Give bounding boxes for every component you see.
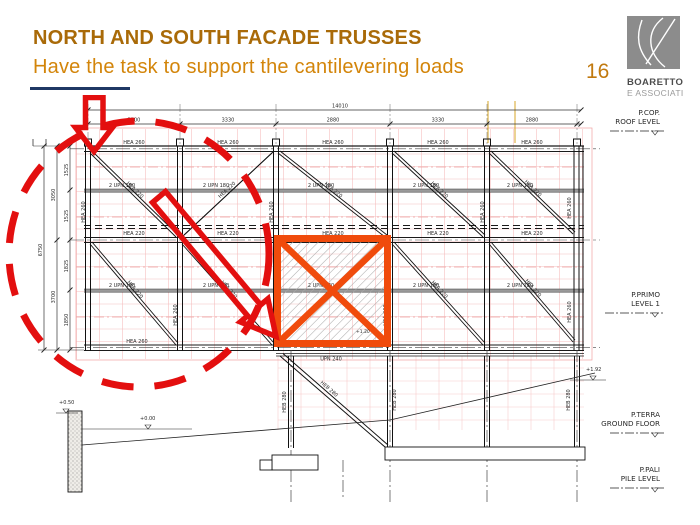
truss-diagonal [90, 244, 176, 345]
height-group-dim: 3050 [51, 189, 57, 202]
middle-chord-label: HEA 220 [123, 231, 144, 237]
tie-beam-label: UPN 240 [320, 357, 342, 363]
total-height-dim: 6750 [38, 244, 44, 257]
height-seg-dim: 1850 [64, 314, 70, 327]
purlin-label: 2 UPN 180 [308, 183, 334, 189]
top-chord-label: HEA 260 [322, 140, 343, 146]
truss-end-post [574, 146, 583, 351]
height-group-dim: 3700 [51, 291, 57, 304]
spot-level-ground: +0.00 [140, 416, 155, 422]
reference-lines-yellow [488, 101, 515, 143]
purlin-label: 2 UPN 180 [109, 283, 135, 289]
bottom-chord-label: HEA 260 [126, 339, 147, 345]
column-label: HEB 280 [282, 391, 288, 412]
level-terra-name: GROUND FLOOR [601, 419, 660, 428]
title-underline [30, 87, 130, 90]
truss-diagonal [278, 153, 385, 237]
middle-chord-label: HEA 220 [427, 231, 448, 237]
slide: NORTH AND SOUTH FACADE TRUSSES Have the … [0, 0, 700, 525]
top-chord-label: HEA 260 [123, 140, 144, 146]
vertical-label: HEA 260 [269, 201, 275, 222]
truss-diagonal [489, 244, 573, 342]
dimension-chains-left [38, 146, 84, 350]
page-title: NORTH AND SOUTH FACADE TRUSSES [33, 27, 422, 50]
level-terra-abbr: P.TERRA [631, 410, 660, 419]
level-primo-abbr: P.PRIMO [631, 290, 660, 299]
vertical-label: HEA 260 [567, 301, 573, 322]
purlin-label: 2 UPN 180 [203, 183, 229, 189]
company-logo: BOARETTO E ASSOCIATI [627, 16, 693, 98]
logo-name: BOARETTO [627, 77, 693, 88]
spot-level-terrain: +1.92 [586, 367, 601, 373]
below-truss-brace [280, 354, 388, 448]
vertical-label: HEA 260 [480, 201, 486, 222]
truss-diagonal [489, 153, 573, 234]
truss-elevation-svg: HEA 220HEA 220HEA 220HEA 220HEA 220HEA 2… [0, 95, 700, 525]
vertical-label: HEA 260 [567, 197, 573, 218]
brace-label: HEB 280 [319, 380, 339, 399]
page-number: 16 [586, 60, 609, 84]
column-label: HEB 280 [566, 389, 572, 410]
top-chord-label: HEA 260 [217, 140, 238, 146]
middle-chord-label: HEA 220 [521, 231, 542, 237]
spot-level-wall: +0.50 [59, 400, 74, 406]
level-roof-name: ROOF LEVEL [615, 117, 660, 126]
total-span-dimension: 14010 [332, 104, 348, 110]
height-seg-dim: 1525 [64, 164, 70, 177]
purlin-label: 2 UPN 180 [413, 183, 439, 189]
dimension-chain-labels: 6750 3050 3700 1525 1525 1825 1850 [38, 164, 70, 327]
middle-chord-label: HEA 220 [217, 231, 238, 237]
height-seg-dim: 1525 [64, 210, 70, 223]
height-seg-dim: 1825 [64, 260, 70, 273]
purlin-label: 2 UPN 180 [507, 183, 533, 189]
top-chord-label: HEA 260 [427, 140, 448, 146]
boaretto-logo-icon [627, 16, 680, 69]
level-labels: P.COP. ROOF LEVEL P.PRIMO LEVEL 1 P.TERR… [601, 108, 664, 492]
truss-diagonal [392, 244, 483, 345]
top-chord-label: HEA 260 [521, 140, 542, 146]
level-pali-name: PILE LEVEL [621, 474, 660, 483]
level-primo-name: LEVEL 1 [631, 299, 660, 308]
bay-span-dimension: 2880 [327, 118, 340, 124]
vertical-label: HEA 260 [81, 201, 87, 222]
truss-elevation-drawing: HEA 220HEA 220HEA 220HEA 220HEA 220HEA 2… [0, 95, 700, 525]
page-subtitle: Have the task to support the cantileveri… [33, 56, 464, 79]
column-label: HEB 280 [392, 389, 398, 410]
level-pali-abbr: P.PALI [640, 465, 660, 474]
vertical-label: HEA 260 [173, 304, 179, 325]
bay-span-dimension: 3330 [222, 118, 235, 124]
purlin-label: 2 UPN 180 [109, 183, 135, 189]
square-note-label: +1.20 [356, 329, 370, 335]
bay-span-dimension: 2880 [526, 118, 539, 124]
retaining-wall [68, 411, 82, 492]
truss-diagonal [392, 153, 483, 237]
purlin-label: 2 UPN 180 [507, 283, 533, 289]
purlin-label: 2 UPN 180 [413, 283, 439, 289]
bay-span-dimension: 3330 [432, 118, 445, 124]
level-roof-abbr: P.COP. [638, 108, 660, 117]
footings [260, 447, 585, 470]
